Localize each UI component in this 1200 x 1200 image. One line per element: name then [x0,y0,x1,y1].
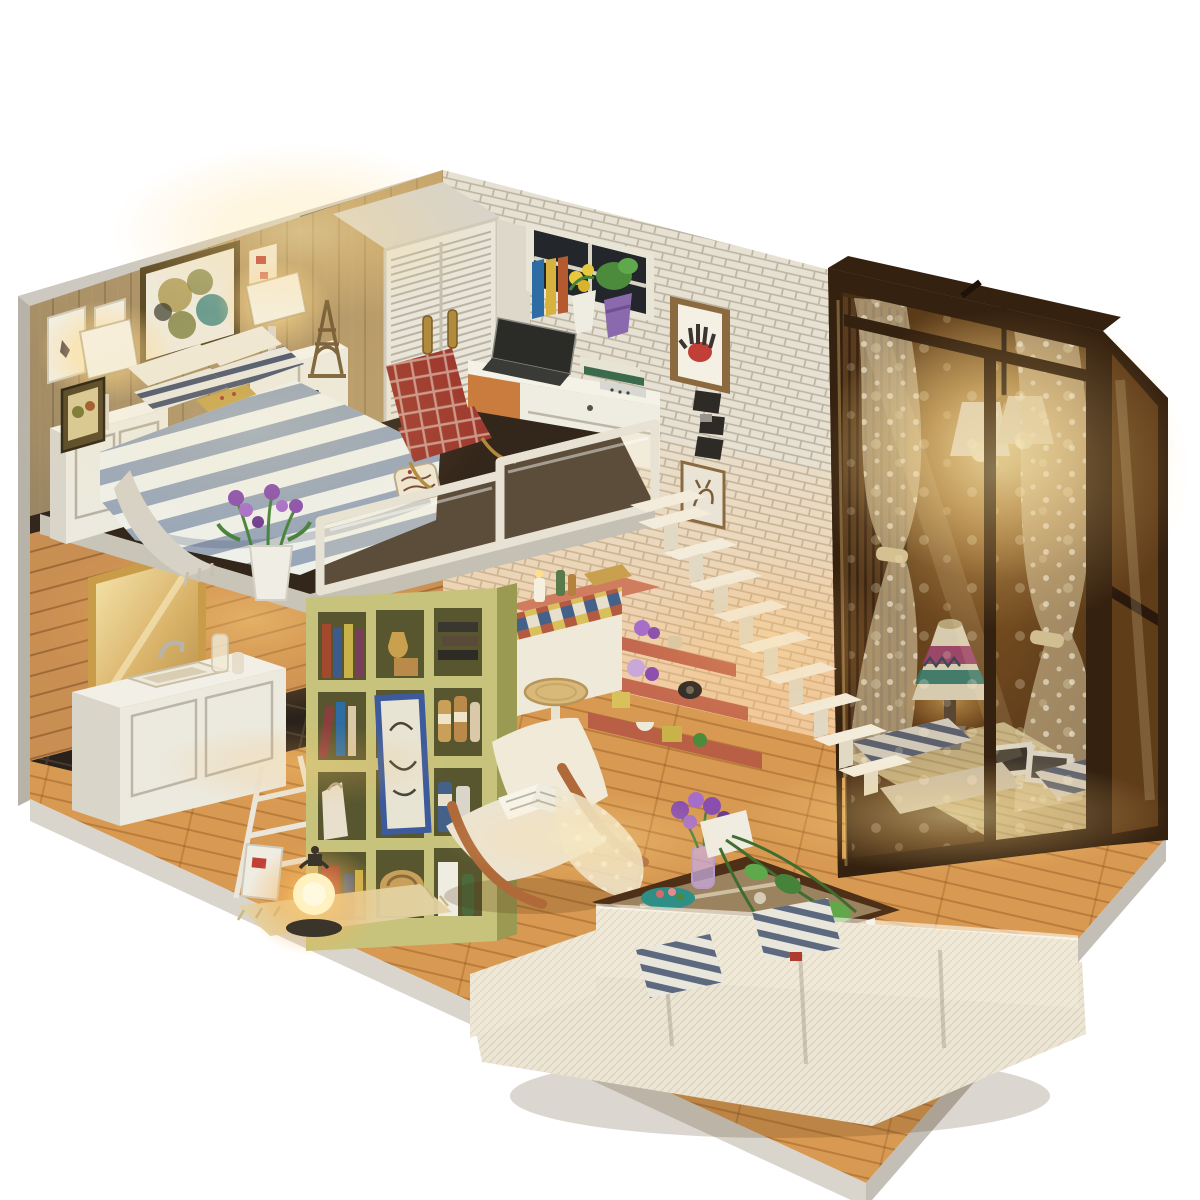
diorama-illustration [0,0,1200,1200]
dollhouse-photo [0,0,1200,1200]
handprint-art [670,296,730,394]
wall-left-edge [18,296,30,806]
teal-bowl [641,887,695,909]
jar-row [438,696,480,742]
window-sill-books [532,256,568,319]
